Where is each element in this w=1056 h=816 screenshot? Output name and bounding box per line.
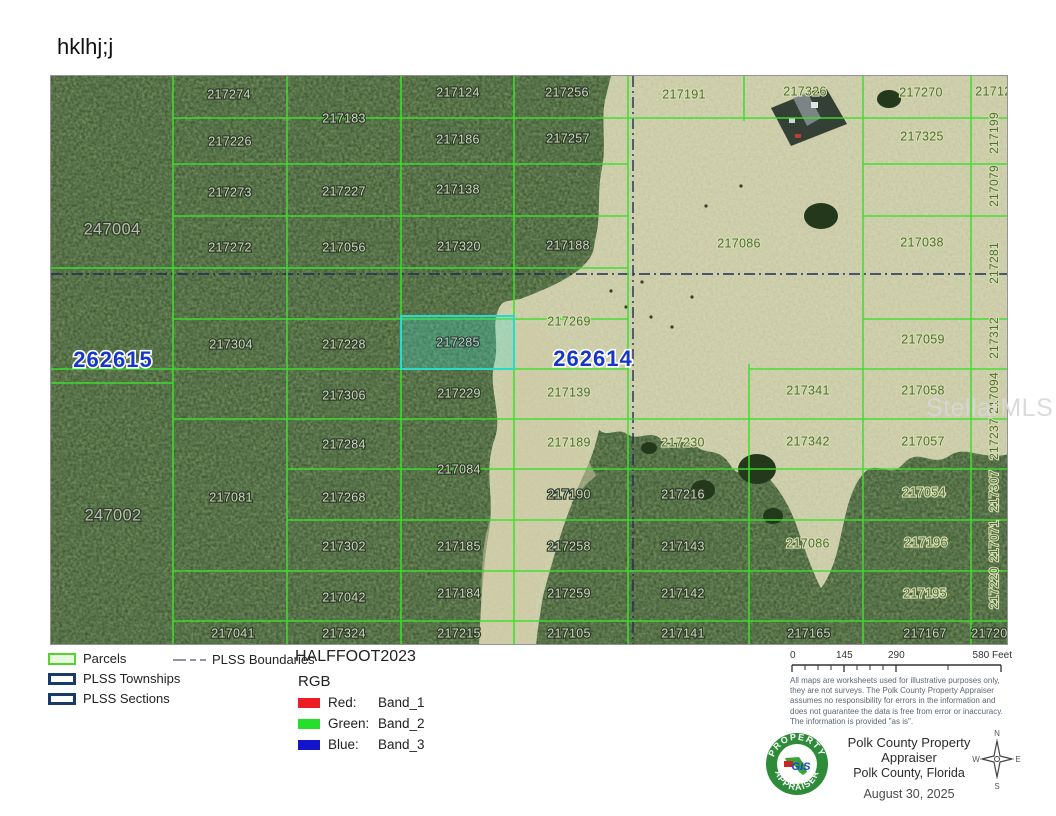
- plss-section-label: 262615: [73, 347, 152, 372]
- raster-legend: HALFFOOT2023 RGB Red: Band_1 Green: Band…: [295, 648, 425, 759]
- parcel-label: 217272: [208, 240, 252, 254]
- parcel-label: 217186: [436, 132, 480, 146]
- red-band-swatch: [298, 698, 320, 708]
- red-band-label: Red:: [328, 695, 378, 710]
- page-title: hklhj;j: [57, 34, 113, 60]
- parcel-label: 217307: [987, 470, 1001, 512]
- raster-rgb-label: RGB: [298, 673, 425, 690]
- parcel-label: 217274: [207, 87, 251, 101]
- parcel-label: 217038: [900, 235, 944, 249]
- credits: Polk County Property Appraiser Polk Coun…: [833, 736, 985, 801]
- parcel-label: 217188: [546, 238, 590, 252]
- band-row-blue: Blue: Band_3: [298, 738, 425, 751]
- parcel-label: 217268: [322, 490, 366, 504]
- credits-date: August 30, 2025: [833, 787, 985, 801]
- parcel-label: 217220: [987, 567, 1001, 609]
- parcel-label: 217184: [437, 586, 481, 600]
- parcel-label: 217302: [322, 539, 366, 553]
- parcel-label: 217041: [211, 626, 255, 640]
- parcel-label: 217256: [545, 85, 589, 99]
- parcel-label: 217081: [209, 490, 253, 504]
- parcel-label: 217304: [209, 337, 253, 351]
- parcel-label: 217167: [903, 626, 947, 640]
- parcel-label: 217320: [437, 239, 481, 253]
- parcel-label: 217105: [547, 626, 591, 640]
- plss-sections-swatch: [48, 693, 76, 705]
- green-band-label: Green:: [328, 716, 378, 731]
- parcel-label: 217228: [322, 337, 366, 351]
- parcel-label: 217229: [437, 386, 481, 400]
- parcel-label: 217227: [322, 184, 366, 198]
- red-band-value: Band_1: [378, 695, 425, 710]
- parcel-label: 217042: [322, 590, 366, 604]
- credits-line2: Polk County, Florida: [833, 766, 985, 780]
- parcel-label: 217195: [903, 586, 947, 600]
- township-label: 247004: [84, 220, 141, 238]
- legend-item-plss-townships: PLSS Townships: [48, 671, 180, 686]
- parcel-label: 217196: [904, 535, 948, 549]
- parcel-label: 217124: [436, 85, 480, 99]
- parcel-label: 217165: [787, 626, 831, 640]
- parcel-label: 217258: [547, 539, 591, 553]
- parcel-label: 217086: [717, 236, 761, 250]
- parcel-label: 217269: [547, 314, 591, 328]
- parcel-label: 217285: [436, 335, 480, 349]
- scale-tick-0: 0: [790, 650, 796, 661]
- parcel-label: 217215: [437, 626, 481, 640]
- map-svg: 2172742171242172562171832172262171862172…: [51, 76, 1008, 645]
- legend-item-parcels: Parcels: [48, 651, 180, 666]
- band-row-green: Green: Band_2: [298, 717, 425, 730]
- map[interactable]: 2172742171242172562171832172262171862172…: [50, 75, 1008, 645]
- green-band-swatch: [298, 719, 320, 729]
- parcel-label: 217142: [661, 586, 705, 600]
- township-label: 247002: [85, 506, 142, 524]
- parcel-label: 217139: [547, 385, 591, 399]
- compass-s: S: [994, 782, 999, 791]
- watermark: StellarMLS: [926, 394, 1053, 423]
- compass-rose: N S W E: [972, 727, 1022, 796]
- parcel-label: 217259: [547, 586, 591, 600]
- parcel-label: 217199: [987, 112, 1001, 154]
- appraiser-logo: PROPERTY APPRAISER GIS: [765, 732, 829, 801]
- parcel-label: 217326: [783, 84, 827, 98]
- parcel-label: 217281: [987, 242, 1001, 284]
- parcel-label: 217324: [322, 626, 366, 640]
- parcel-label: 217127: [975, 84, 1008, 98]
- parcel-label: 217191: [662, 87, 706, 101]
- compass-n: N: [994, 729, 1000, 738]
- plss-townships-label: PLSS Townships: [83, 671, 180, 686]
- scalebar: 0 145 290 580 Feet: [790, 650, 1012, 674]
- band-row-red: Red: Band_1: [298, 696, 425, 709]
- parcel-label: 217057: [901, 434, 945, 448]
- parcel-label: 217341: [786, 383, 830, 397]
- parcel-label: 217185: [437, 539, 481, 553]
- page: { "page": { "title": "hklhj;j" }, "water…: [0, 0, 1056, 816]
- disclaimer-text: All maps are worksheets used for illustr…: [790, 676, 1014, 727]
- scalebar-rule: [790, 664, 1012, 674]
- plss-sections-label: PLSS Sections: [83, 691, 170, 706]
- parcel-label: 217312: [987, 317, 1001, 359]
- plss-section-label: 262614: [553, 346, 632, 371]
- parcel-label: 217054: [902, 485, 946, 499]
- scalebar-labels: 0 145 290 580 Feet: [790, 650, 1012, 662]
- parcel-label: 217143: [661, 539, 705, 553]
- credits-line1: Polk County Property Appraiser: [833, 736, 985, 765]
- logo-gis-text: GIS: [792, 761, 812, 773]
- parcel-label: 217138: [436, 182, 480, 196]
- parcel-label: 217084: [437, 462, 481, 476]
- parcel-label: 217200: [971, 626, 1008, 640]
- parcel-label: 217086: [786, 536, 830, 550]
- parcel-label: 217342: [786, 434, 830, 448]
- parcels-label: Parcels: [83, 651, 126, 666]
- parcel-label: 217257: [546, 131, 590, 145]
- parcel-label: 217141: [661, 626, 705, 640]
- legend: Parcels PLSS Townships PLSS Sections: [48, 651, 180, 711]
- green-band-value: Band_2: [378, 716, 425, 731]
- blue-band-swatch: [298, 740, 320, 750]
- parcel-label: 217079: [987, 165, 1001, 207]
- parcel-label: 217325: [900, 129, 944, 143]
- scale-tick-145: 145: [836, 650, 853, 661]
- parcel-label: 217306: [322, 388, 366, 402]
- parcel-label: 217056: [322, 240, 366, 254]
- parcels-swatch: [48, 653, 76, 665]
- scale-tick-580: 580 Feet: [973, 650, 1012, 661]
- parcel-label: 217071: [987, 520, 1001, 562]
- scale-tick-290: 290: [888, 650, 905, 661]
- blue-band-label: Blue:: [328, 737, 378, 752]
- parcel-label: 217190: [547, 487, 591, 501]
- dash-dot-line-icon: [172, 653, 206, 667]
- parcel-label: 217216: [661, 487, 705, 501]
- parcel-label: 217230: [661, 435, 705, 449]
- parcel-label: 217284: [322, 437, 366, 451]
- parcel-label: 217237: [987, 418, 1001, 460]
- legend-item-plss-boundaries: PLSS Boundaries: [172, 652, 315, 667]
- legend-item-plss-sections: PLSS Sections: [48, 691, 180, 706]
- compass-e: E: [1015, 755, 1020, 764]
- parcel-label: 217183: [322, 111, 366, 125]
- raster-title: HALFFOOT2023: [295, 648, 425, 666]
- parcel-label: 217270: [899, 85, 943, 99]
- parcel-label: 217189: [547, 435, 591, 449]
- plss-townships-swatch: [48, 673, 76, 685]
- compass-w: W: [972, 755, 980, 764]
- parcel-label: 217226: [208, 134, 252, 148]
- parcel-label: 217059: [901, 332, 945, 346]
- parcel-label: 217273: [208, 185, 252, 199]
- blue-band-value: Band_3: [378, 737, 425, 752]
